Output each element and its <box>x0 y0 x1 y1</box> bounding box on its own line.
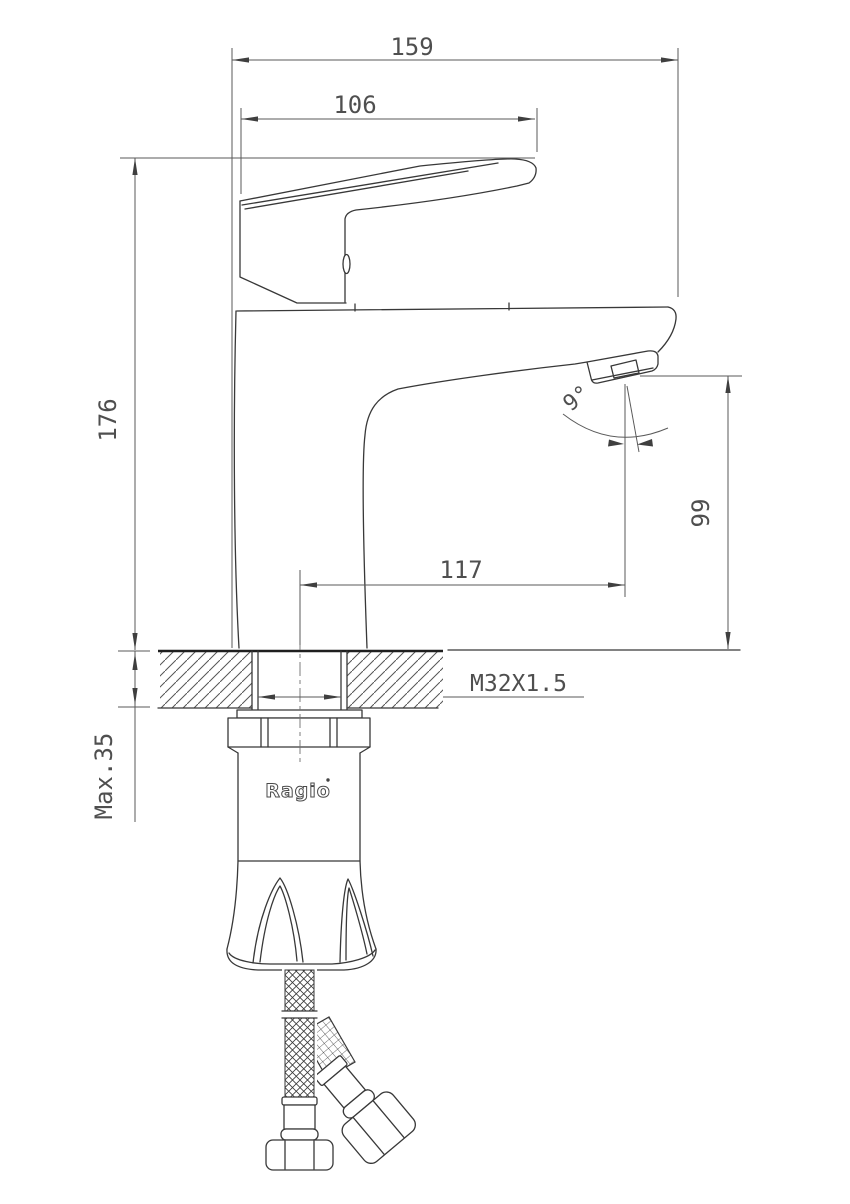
vertical-hose-nut <box>266 1140 333 1170</box>
dim-total-height-label: 176 <box>94 398 122 441</box>
dim-thread-label: M32X1.5 <box>470 671 567 697</box>
countertop-section <box>158 650 740 710</box>
countertop-hatch-left <box>160 652 252 708</box>
technical-drawing-page: Ragio 159 <box>0 0 850 1204</box>
dim-spout-height-label: 99 <box>687 499 715 528</box>
dimension-spout-height: 99 <box>640 376 742 649</box>
supply-body <box>238 753 360 861</box>
faucet-spout-aerator <box>587 351 658 383</box>
countertop-hatch-right <box>347 652 443 708</box>
technical-drawing-canvas: Ragio 159 <box>0 0 850 1204</box>
faucet-handle <box>240 159 536 303</box>
dimension-handle-length: 106 <box>241 91 537 194</box>
dim-overall-length-label: 159 <box>390 33 433 61</box>
dim-spout-angle-label: 9° <box>559 381 595 417</box>
handle-indicator-button <box>343 255 350 274</box>
dim-spout-reach-label: 117 <box>439 556 482 584</box>
dimension-max-thickness: Max.35 <box>90 651 150 822</box>
dimension-spout-angle: 9° <box>559 381 668 452</box>
brand-logo: Ragio <box>265 778 331 802</box>
threaded-shank <box>252 651 347 710</box>
trademark-dot <box>326 778 329 781</box>
dim-handle-length-label: 106 <box>333 91 376 119</box>
mounting-nut <box>228 710 370 753</box>
dim-max-thickness-label: Max.35 <box>90 733 118 820</box>
brand-logo-text: Ragio <box>265 780 331 802</box>
faucet-body <box>234 303 676 648</box>
mounting-skirt <box>227 861 376 970</box>
